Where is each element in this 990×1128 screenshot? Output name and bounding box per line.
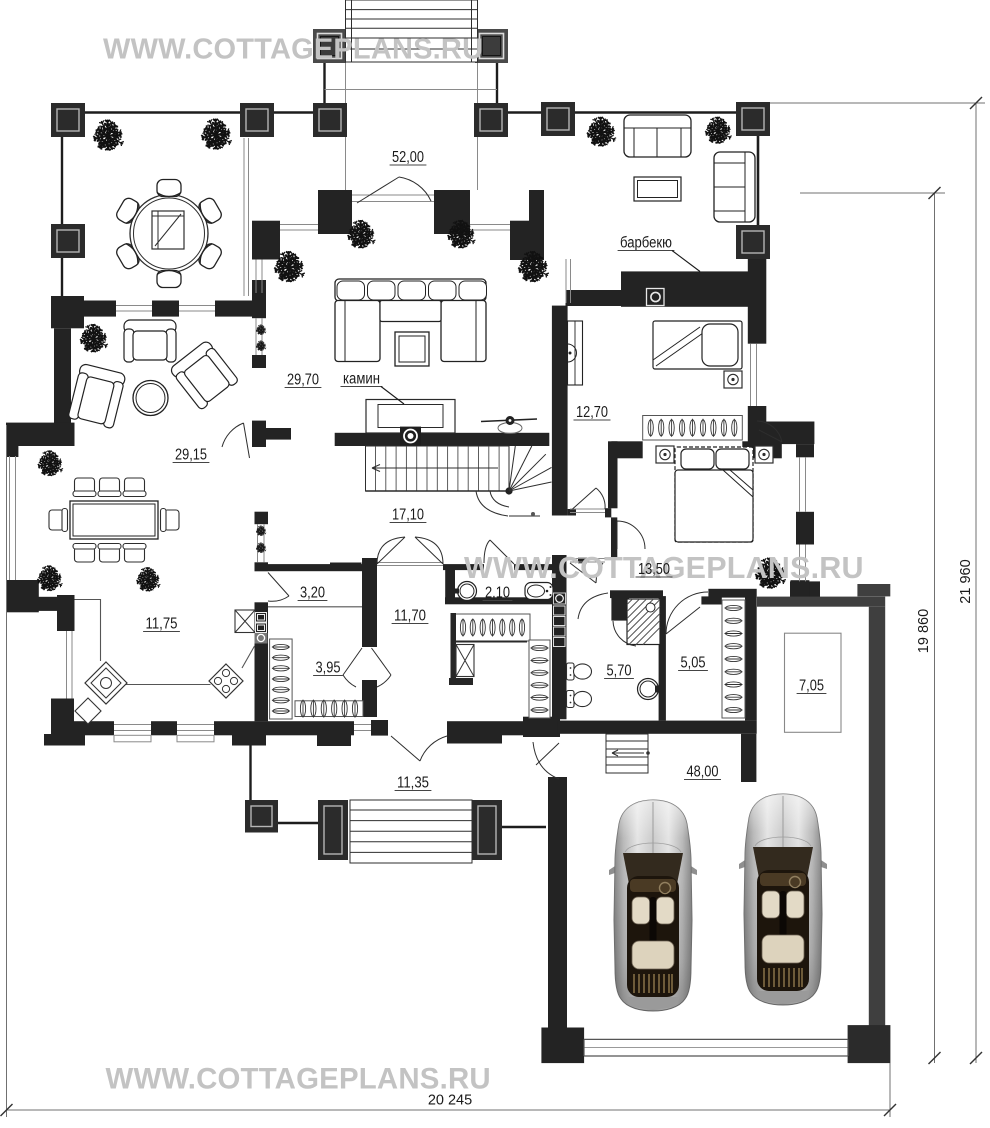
svg-text:12,70: 12,70: [576, 404, 608, 421]
svg-text:11,75: 11,75: [146, 616, 178, 633]
svg-text:11,35: 11,35: [397, 775, 429, 792]
svg-text:17,10: 17,10: [392, 507, 424, 524]
svg-text:WWW.COTTAGEPLANS.RU: WWW.COTTAGEPLANS.RU: [106, 1063, 491, 1096]
svg-text:5,05: 5,05: [681, 655, 706, 672]
svg-text:29,70: 29,70: [287, 372, 319, 389]
svg-text:13,50: 13,50: [638, 561, 670, 578]
svg-text:48,00: 48,00: [687, 764, 719, 781]
svg-text:3,95: 3,95: [316, 660, 341, 677]
svg-text:барбекю: барбекю: [620, 235, 672, 252]
svg-text:21 960: 21 960: [958, 559, 974, 603]
svg-text:камин: камин: [343, 371, 380, 388]
svg-text:7,05: 7,05: [799, 678, 824, 695]
svg-text:3,20: 3,20: [300, 585, 325, 602]
svg-text:29,15: 29,15: [175, 447, 207, 464]
svg-text:19 860: 19 860: [916, 609, 932, 653]
svg-text:WWW.COTTAGEPLANS.RU: WWW.COTTAGEPLANS.RU: [103, 34, 483, 66]
svg-text:2,10: 2,10: [485, 585, 510, 602]
svg-text:52,00: 52,00: [392, 149, 424, 166]
svg-text:11,70: 11,70: [394, 608, 426, 625]
svg-text:5,70: 5,70: [607, 663, 632, 680]
svg-text:20 245: 20 245: [428, 1093, 472, 1109]
